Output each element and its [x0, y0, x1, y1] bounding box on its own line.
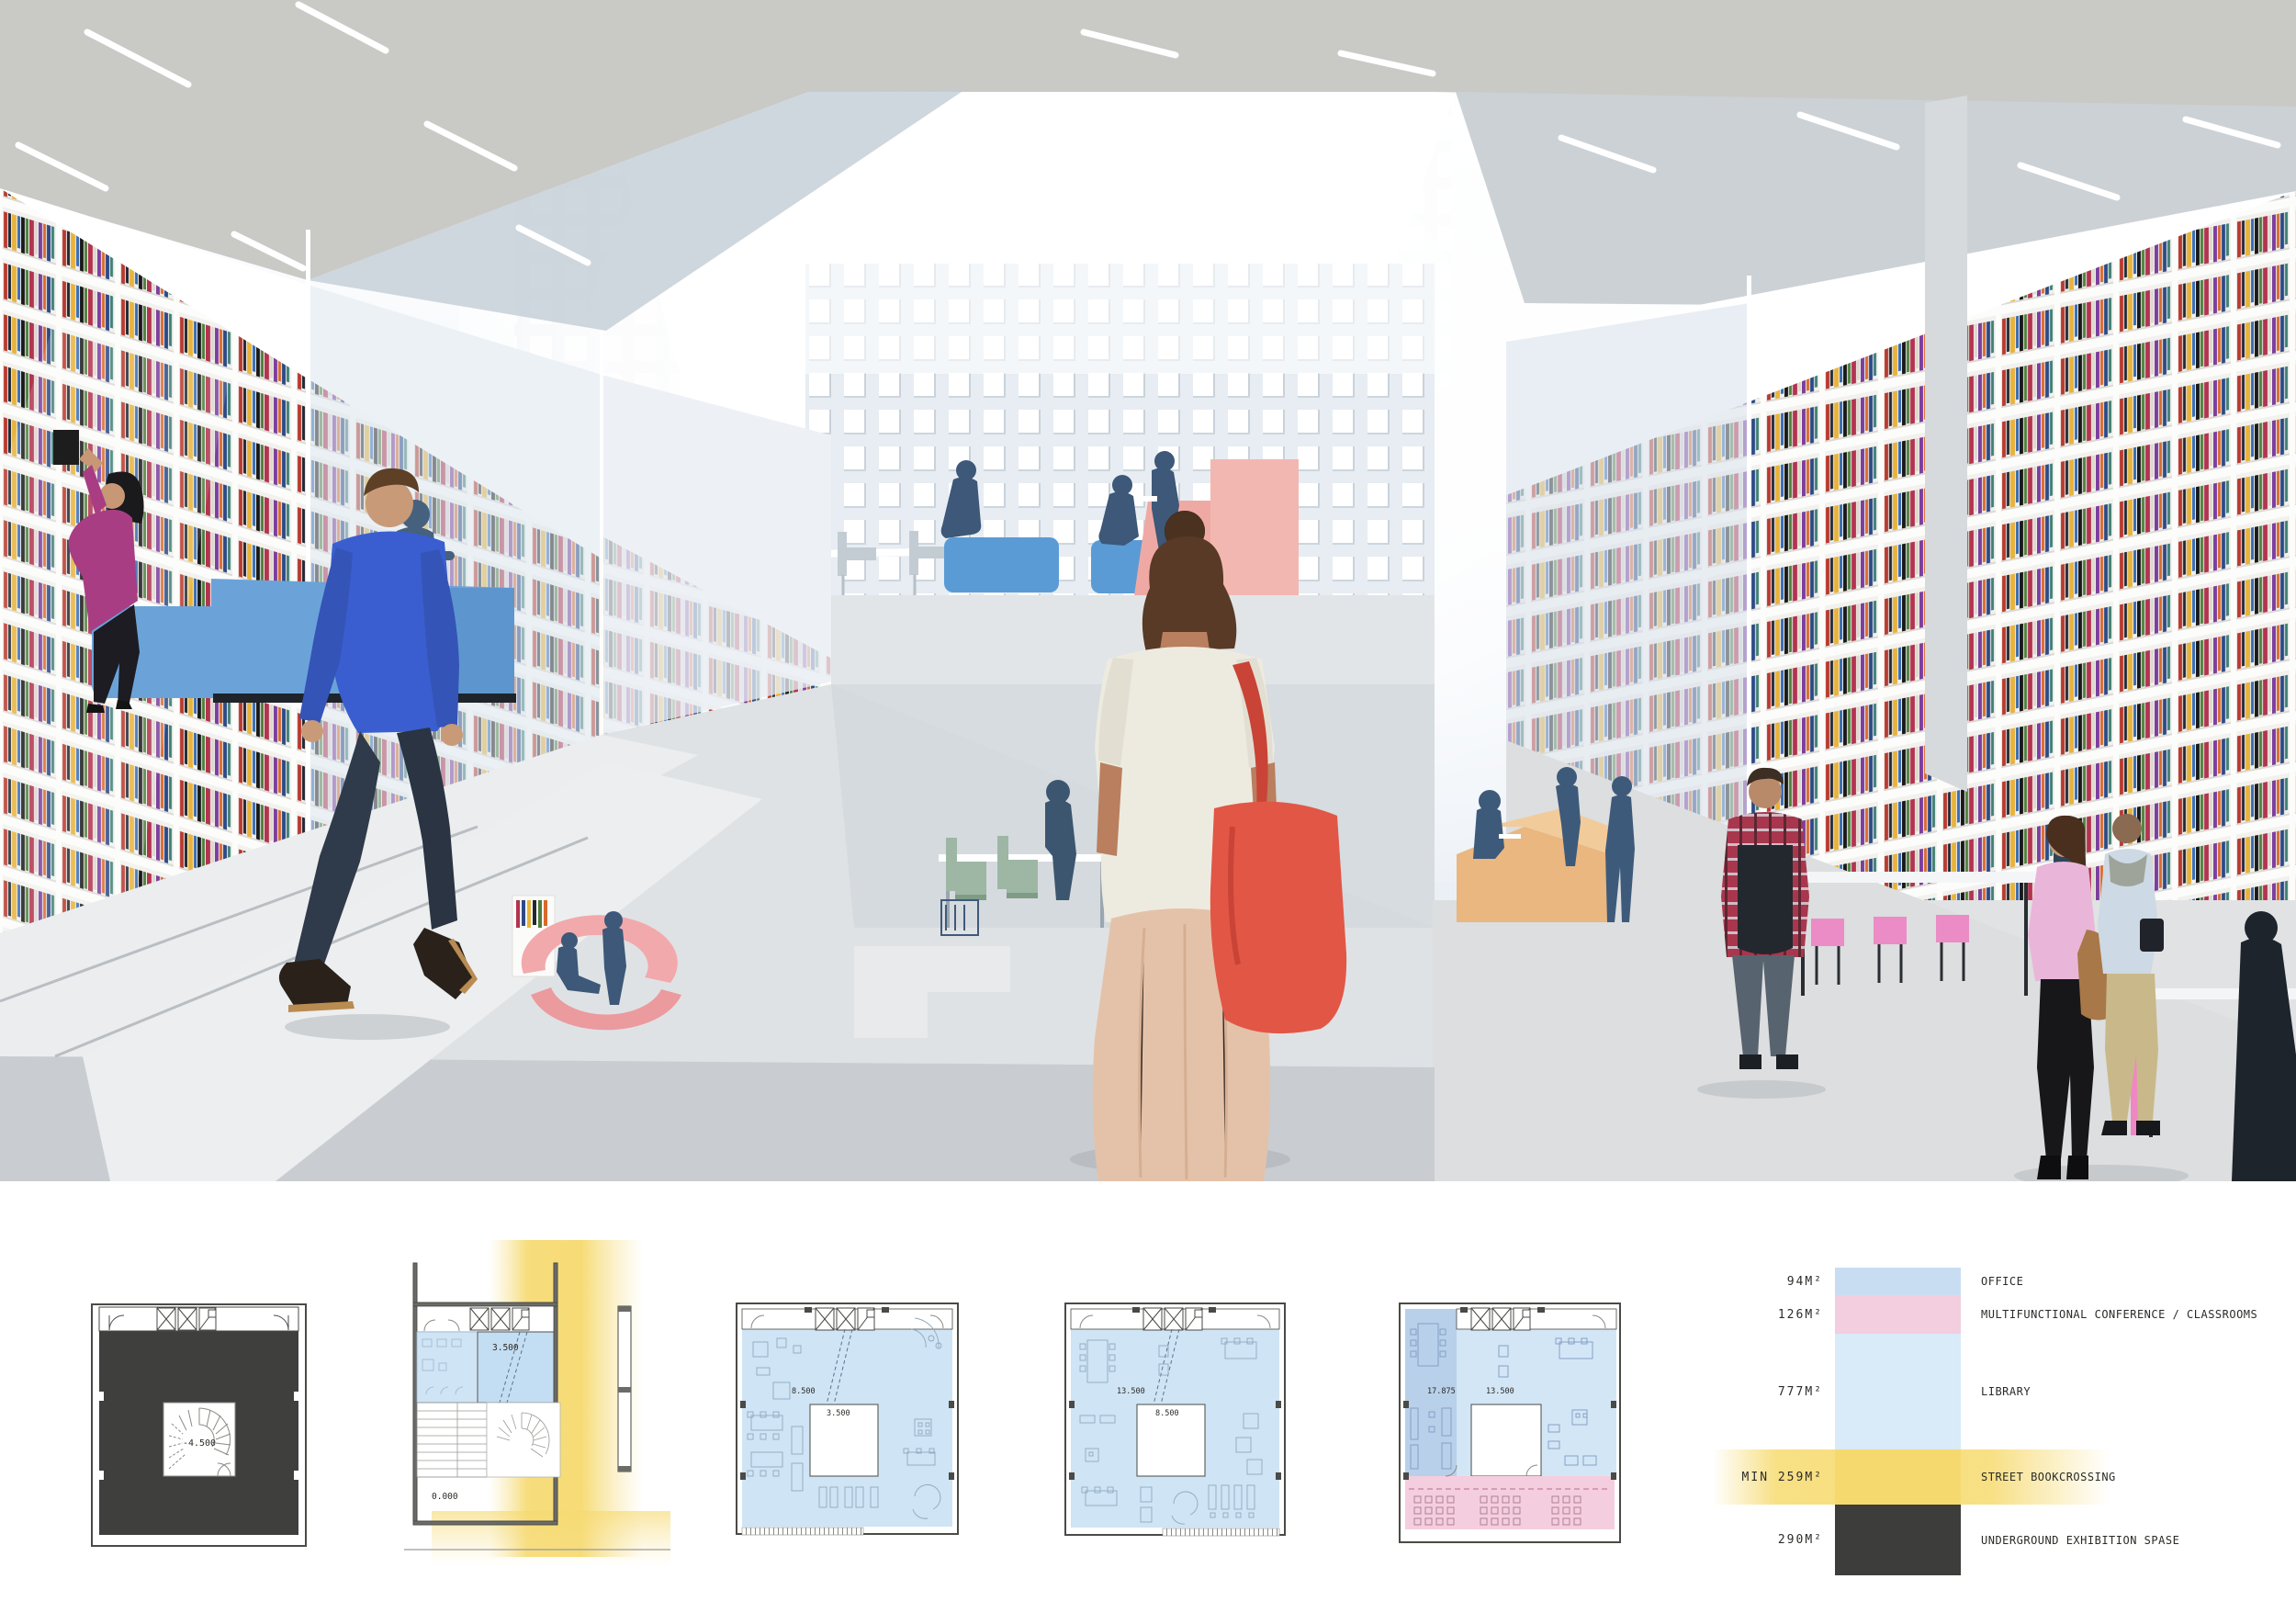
- main-level-label: 13.500: [1117, 1387, 1145, 1396]
- wc-room: [417, 1332, 478, 1403]
- shoe: [1776, 1054, 1798, 1069]
- blue-pouf: [944, 537, 1059, 592]
- main-level-label: 8.500: [792, 1387, 816, 1396]
- office-swatch: [1835, 1268, 1961, 1295]
- shoe: [1739, 1054, 1761, 1069]
- legend-label: LIBRARY: [1981, 1385, 2031, 1398]
- concrete-pillar: [1925, 96, 1967, 792]
- legend-row-bookcrossing: MIN 259M² STREET BOOKCROSSING: [1727, 1449, 2296, 1505]
- balcony-hatch: [742, 1528, 863, 1535]
- interior-rendering-svg: [0, 0, 2296, 1181]
- detached-wall: [618, 1306, 631, 1472]
- pink-stool: [1811, 919, 1844, 946]
- presentation-board: -4.500 3.500: [0, 0, 2296, 1624]
- atrium-void: [1471, 1404, 1541, 1476]
- area-value: MIN 259M²: [1727, 1471, 1823, 1484]
- level-one-floor-plan: 8.500 3.500: [735, 1298, 960, 1543]
- office-level-label: 17.875: [1427, 1387, 1456, 1396]
- level-label: -4.500: [183, 1438, 216, 1449]
- ground-level-section: 3.500 0.000: [404, 1240, 670, 1571]
- area-value: 126M²: [1727, 1308, 1823, 1322]
- exhibition-swatch: [1835, 1505, 1961, 1575]
- shadow: [285, 1014, 450, 1040]
- pink-stool: [1874, 917, 1907, 944]
- level-three-floor-plan: 17.875 13.500: [1398, 1298, 1622, 1551]
- bookcrossing-glow-low: [432, 1511, 670, 1566]
- legend-row-library: 777M² LIBRARY: [1727, 1334, 2296, 1449]
- backpack: [1738, 845, 1793, 954]
- book-in-hand: [53, 430, 79, 465]
- legend-label: MULTIFUNCTIONAL CONFERENCE / CLASSROOMS: [1981, 1308, 2257, 1321]
- legend-label: UNDERGROUND EXHIBITION SPASE: [1981, 1534, 2179, 1547]
- shadow: [1697, 1080, 1826, 1099]
- underground-floor-plan: -4.500: [91, 1303, 307, 1547]
- void-level-label: 8.500: [1155, 1409, 1179, 1418]
- pink-steps-upper: [1210, 459, 1299, 595]
- entry-stairs: [417, 1403, 560, 1477]
- bookcrossing-swatch: [1835, 1449, 1961, 1505]
- area-value: 777M²: [1727, 1385, 1823, 1399]
- legend-label: OFFICE: [1981, 1275, 2023, 1288]
- conference-swatch: [1835, 1295, 1961, 1334]
- ground-level-label: 0.000: [432, 1492, 458, 1502]
- interior-rendering: [0, 0, 2296, 1181]
- level-two-floor-plan: 13.500 8.500: [1064, 1298, 1287, 1546]
- legend-label: STREET BOOKCROSSING: [1981, 1471, 2116, 1483]
- book: [2140, 919, 2164, 952]
- legend-row-office: 94M² OFFICE: [1727, 1268, 2296, 1295]
- void-level-label: 3.500: [827, 1409, 850, 1418]
- library-swatch: [1835, 1334, 1961, 1449]
- area-value: 290M²: [1727, 1533, 1823, 1547]
- balcony-hatch: [1163, 1528, 1279, 1536]
- legend-row-conference: 126M² MULTIFUNCTIONAL CONFERENCE / CLASS…: [1727, 1295, 2296, 1334]
- area-value: 94M²: [1727, 1275, 1823, 1289]
- upper-level-label: 3.500: [492, 1343, 519, 1353]
- pink-stool: [1936, 915, 1969, 942]
- legend-row-exhibition: 290M² UNDERGROUND EXHIBITION SPASE: [1727, 1505, 2296, 1575]
- main-level-label: 13.500: [1486, 1387, 1514, 1396]
- program-legend: 94M² OFFICE 126M² MULTIFUNCTIONAL CONFER…: [1727, 1268, 2296, 1580]
